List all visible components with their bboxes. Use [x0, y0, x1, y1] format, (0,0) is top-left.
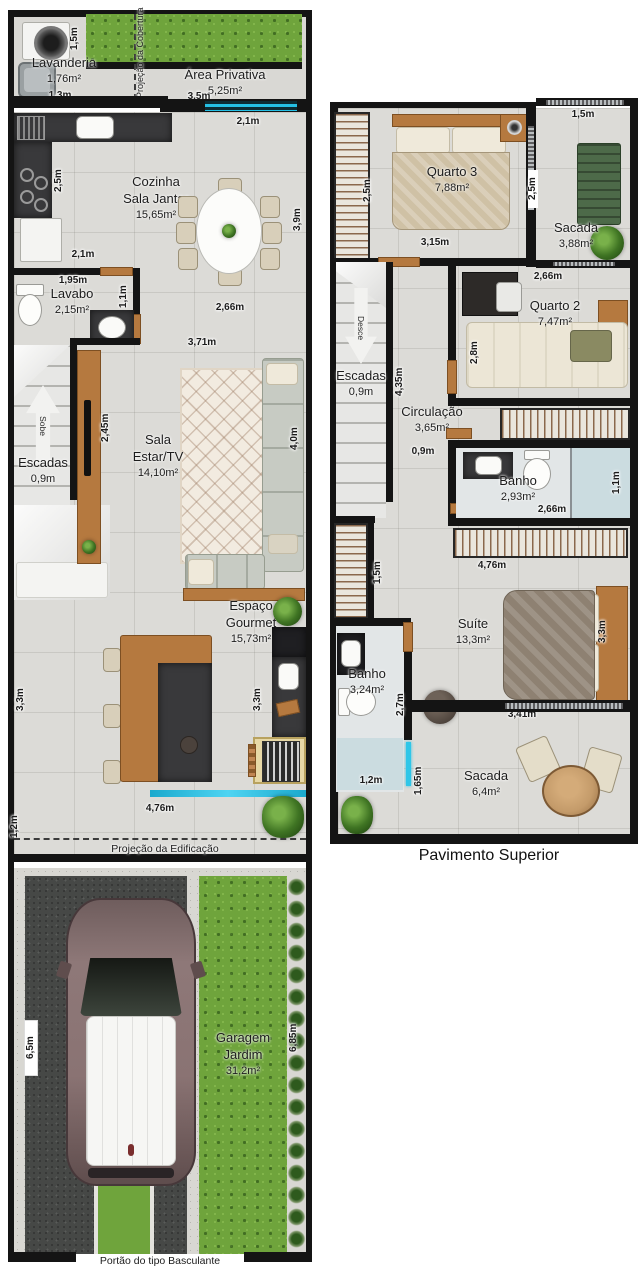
gourmet-table-granite [158, 663, 212, 782]
banho-suite-name: Banho [334, 666, 400, 683]
room-label-sacada-inf: Sacada 6,4m² [448, 768, 524, 799]
gourmet-chair [103, 760, 121, 784]
wall [448, 518, 638, 526]
sacada-sup-area: 3,88m² [540, 237, 612, 251]
kitchen-sink-icon [76, 116, 114, 139]
dim-label: 1,1m [612, 468, 622, 498]
room-label-escadas: Escadas 0,9m [12, 455, 74, 486]
banho-sup-area: 2,93m² [488, 490, 548, 504]
dim-label: 2,66m [522, 505, 582, 515]
wall [8, 96, 168, 108]
quarto2-area: 7,47m² [515, 315, 595, 329]
sala-name2: Estar/TV [122, 449, 194, 466]
dim-label: 4,76m [130, 804, 190, 814]
cooktop-burner-icon [34, 176, 48, 190]
door-frame [100, 267, 133, 276]
wall [448, 398, 638, 406]
plant-icon [273, 597, 302, 626]
dim-label: 3,71m [172, 338, 232, 348]
sobe-label: Sobe [38, 416, 48, 436]
building-projection-line [14, 838, 306, 840]
escadas-sup-name: Escadas [332, 368, 390, 385]
table-plant-icon [222, 224, 236, 238]
bed-headboard [392, 114, 510, 127]
dim-label: 0,9m [398, 447, 448, 457]
closet-left [334, 523, 368, 619]
gourmet-cabinet [272, 627, 306, 657]
gourmet-sink-icon [278, 663, 299, 690]
upper-floor-caption: Pavimento Superior [394, 847, 584, 865]
sacada-sup-window2 [553, 262, 615, 266]
suite-area: 13,3m² [438, 633, 508, 647]
sala-name1: Sala [122, 432, 194, 449]
fridge-icon [20, 218, 62, 262]
door-frame [447, 360, 457, 394]
bed-pillow [452, 127, 506, 154]
sofa-pillow [268, 534, 298, 554]
lavabo-area: 2,15m² [40, 303, 104, 317]
dim-label: 1,5m [373, 556, 383, 590]
lavanderia-name: Lavanderia [18, 55, 110, 72]
dim-label: 3,3m [16, 682, 26, 718]
dim-label: 1,95m [48, 276, 98, 286]
bench-stone [16, 562, 108, 598]
wall [8, 854, 312, 862]
dim-label: 1,1m [119, 283, 129, 311]
gourmet-chair [103, 704, 121, 728]
lavabo-name: Lavabo [40, 286, 104, 303]
cooktop-burner-icon [20, 190, 34, 204]
dim-label: 2,7m [396, 688, 406, 722]
room-label-quarto3: Quarto 3 7,88m² [412, 164, 492, 195]
dim-label: 2,45m [101, 408, 111, 448]
lavabo-sink-icon [98, 316, 126, 339]
wall [333, 618, 411, 626]
cooktop-burner-icon [20, 168, 34, 182]
dining-chair [260, 248, 280, 270]
lamp-icon [507, 120, 522, 135]
dining-chair [262, 222, 282, 244]
escadas-sup-dim: 0,9m [332, 385, 390, 399]
cozinha-name1: Cozinha [110, 174, 202, 191]
sofa-pillow [188, 559, 214, 585]
grill-grate-icon [262, 741, 300, 782]
wall [330, 834, 638, 844]
bed-pillow [396, 127, 450, 154]
suite-name: Suíte [438, 616, 508, 633]
sacada-sup-window [546, 100, 624, 105]
gate-label: Portão do tipo Basculante [60, 1255, 260, 1267]
closet-suite [453, 528, 628, 558]
room-label-sacada-sup: Sacada 3,88m² [540, 220, 612, 251]
balcony-bench [577, 143, 621, 225]
dining-chair [178, 248, 198, 270]
plant-icon [341, 796, 373, 834]
wall [306, 106, 312, 862]
suite-sacada-window [505, 703, 623, 709]
dim-label: 4,76m [462, 561, 522, 571]
circulacao-name: Circulação [392, 404, 472, 421]
dim-label: 2,1m [60, 250, 106, 260]
wall [420, 258, 536, 266]
room-label-lavanderia: Lavanderia 1,76m² [18, 55, 110, 86]
door-frame [446, 428, 472, 439]
dim-label: 1,5m [70, 22, 80, 56]
dim-label: 1,65m [414, 760, 424, 802]
sacada-sup-name: Sacada [540, 220, 612, 237]
banho-sup-name: Banho [488, 473, 548, 490]
garagem-name2: Jardim [199, 1047, 287, 1064]
banho-suite-sink-icon [341, 640, 361, 667]
balcony-table [542, 765, 600, 817]
cooktop-burner-icon [34, 198, 48, 212]
car-windshield [80, 958, 182, 1016]
entry-window [205, 101, 297, 111]
dim-label: 2,66m [200, 303, 260, 313]
dim-label: 2,66m [518, 272, 578, 282]
stool-icon [180, 736, 198, 754]
dim-label: 1,2m [346, 776, 396, 786]
room-label-garagem: Garagem Jardim 31,2m² [199, 1030, 287, 1078]
dim-label: 1,5m [553, 110, 613, 120]
quarto2-name: Quarto 2 [515, 298, 595, 315]
wall [306, 10, 312, 106]
dim-label: 3,15m [405, 238, 465, 248]
plant-icon [82, 540, 96, 554]
desce-label: Desce [356, 315, 366, 339]
quarto3-name: Quarto 3 [412, 164, 492, 181]
car-roof-handle [128, 1144, 134, 1156]
privativa-name: Área Privativa [178, 67, 272, 84]
banho-suite-area: 3,24m² [334, 683, 400, 697]
garagem-name1: Garagem [199, 1030, 287, 1047]
wall [448, 440, 638, 448]
dining-chair [176, 222, 196, 244]
garden-strip [86, 14, 302, 62]
grill-handles [248, 744, 256, 777]
wall [70, 338, 140, 345]
dim-label: 2,5m [363, 174, 373, 208]
dim-label: 3,3m [598, 614, 608, 650]
dim-label: 3,9m [293, 200, 303, 240]
dim-label: 2,1m [213, 117, 283, 127]
tv-icon [84, 400, 91, 476]
dim-label: 4,35m [395, 360, 405, 404]
building-projection-label: Projeção da Edificação [90, 843, 240, 855]
sacada-inf-area: 6,4m² [448, 785, 524, 799]
dim-label: 2,8m [470, 336, 480, 370]
dim-label: 6,85m [289, 1012, 299, 1064]
sacada-inf-name: Sacada [448, 768, 524, 785]
lavanderia-area: 1,76m² [18, 72, 110, 86]
dish-rack-icon [17, 116, 45, 140]
shower-glass-door [406, 742, 411, 786]
gourmet-chair [103, 648, 121, 672]
room-label-suite: Suíte 13,3m² [438, 616, 508, 647]
sofa-pillow [266, 363, 298, 385]
car-rear-window [88, 1168, 174, 1178]
door-frame [403, 622, 413, 652]
room-label-sala: Sala Estar/TV 14,10m² [122, 432, 194, 480]
dim-label: 6,5m [24, 1020, 38, 1076]
dim-label: 3,3m [253, 682, 263, 718]
room-label-lavabo: Lavabo 2,15m² [40, 286, 104, 317]
closet-quarto2 [500, 408, 630, 440]
floor-plan-canvas: Projeção da Cobertura Lavanderia 1,76m² … [0, 0, 640, 1280]
room-label-banho-sup: Banho 2,93m² [488, 473, 548, 504]
bed-suite [503, 590, 595, 700]
room-label-banho-suite: Banho 3,24m² [334, 666, 400, 697]
hedge-border [287, 876, 306, 1254]
dining-chair [178, 196, 198, 218]
escadas-dim: 0,9m [12, 472, 74, 486]
dining-chair [260, 196, 280, 218]
wall [306, 862, 312, 1260]
quarto3-area: 7,88m² [412, 181, 492, 195]
bed-pillow-olive [570, 330, 612, 362]
garagem-area: 31,2m² [199, 1064, 287, 1078]
room-label-quarto2: Quarto 2 7,47m² [515, 298, 595, 329]
roof-projection-label: Projeção da Cobertura [136, 18, 158, 98]
sala-area: 14,10m² [122, 466, 194, 480]
escadas-name: Escadas [12, 455, 74, 472]
room-label-escadas-sup: Escadas 0,9m [332, 368, 390, 399]
wall [630, 98, 638, 844]
bush-icon [262, 796, 304, 838]
dim-label: 4,0m [290, 420, 300, 458]
dim-label: 2,5m [528, 170, 538, 208]
dim-label: 2,5m [54, 163, 64, 199]
toilet-bowl-icon [18, 294, 42, 326]
